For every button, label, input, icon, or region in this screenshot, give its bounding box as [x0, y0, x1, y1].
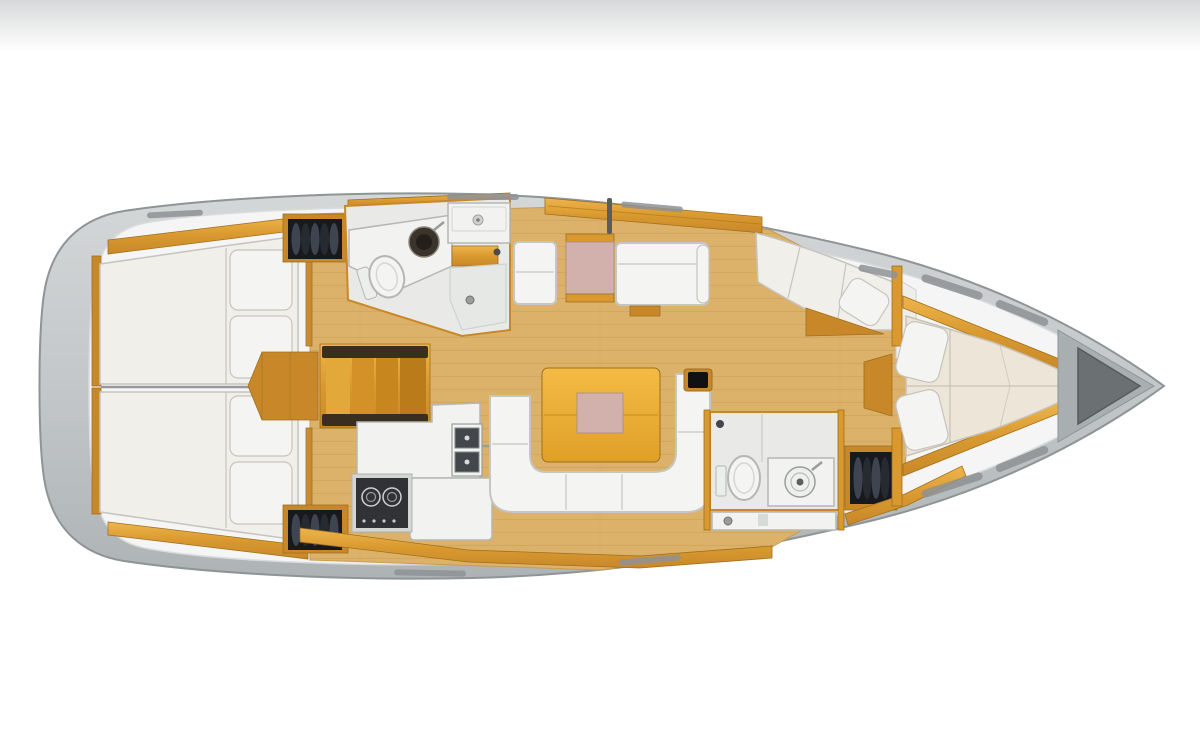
- galley-counter-lower: [410, 478, 492, 540]
- stove-knob: [392, 519, 395, 522]
- chart-table-top: [566, 242, 614, 294]
- bow-bulkhead-lower: [892, 428, 902, 506]
- sink-drain-2: [465, 460, 470, 465]
- hanging-clothes: [311, 223, 320, 255]
- background-top-fade: [0, 0, 1200, 52]
- screen: [688, 372, 708, 388]
- chart-table-edge-top: [566, 234, 614, 242]
- stove-knob: [362, 519, 365, 522]
- head-forward-cabinet: [452, 246, 498, 266]
- hanging-clothes: [872, 457, 881, 499]
- head-forward-shower-floor: [450, 264, 506, 330]
- hanging-clothes: [854, 457, 863, 499]
- bow-vanity: [864, 354, 892, 416]
- table-center-panel: [577, 393, 623, 433]
- head-aft-step: [758, 514, 768, 526]
- stove-knob: [372, 519, 375, 522]
- mast-post: [607, 198, 612, 234]
- sink-drain-1: [465, 436, 470, 441]
- head-aft-fitting: [716, 420, 724, 428]
- hanging-clothes: [301, 223, 310, 255]
- hanging-clothes: [292, 223, 301, 255]
- bench-seat-left: [514, 242, 556, 304]
- washbasin-aft-drain: [797, 479, 804, 486]
- bench-seat-right: [616, 243, 708, 305]
- head-aft: [704, 410, 844, 530]
- stair-tread: [352, 358, 374, 414]
- stairs-landing: [248, 352, 318, 420]
- stair-tread: [376, 358, 398, 414]
- stair-tread: [400, 358, 426, 414]
- bench-step: [630, 306, 660, 316]
- companionway-stairs: [248, 344, 430, 428]
- deck-hatch-slot: [394, 569, 466, 576]
- head-aft-drain: [724, 517, 732, 525]
- head-aft-wall-right: [838, 410, 844, 530]
- aft-bulkhead-lower: [306, 428, 312, 506]
- hanging-clothes: [320, 223, 329, 255]
- deck-hatch-slot: [447, 194, 519, 200]
- stove-knob: [382, 519, 385, 522]
- floor-plan-drawing: [0, 0, 1200, 753]
- hanging-clothes: [292, 514, 301, 546]
- bench-right-armrest: [697, 245, 709, 303]
- hanging-locker-upper: [283, 214, 348, 262]
- stair-tread: [326, 358, 350, 414]
- chart-table-edge-bottom: [566, 294, 614, 302]
- head-aft-wall-left: [704, 410, 710, 530]
- yacht-floor-plan: [0, 0, 1200, 753]
- hanging-clothes: [881, 457, 890, 499]
- sink-faucet-dot: [476, 218, 480, 222]
- shower-fitting: [494, 249, 501, 256]
- hanging-clothes: [863, 457, 872, 499]
- shower-drain: [466, 296, 474, 304]
- hanging-clothes: [330, 223, 339, 255]
- toilet-aft-tank: [716, 466, 726, 496]
- washbasin-bowl: [416, 234, 432, 250]
- stairs-rail-top: [322, 346, 428, 358]
- aft-bulkhead-upper: [306, 262, 312, 346]
